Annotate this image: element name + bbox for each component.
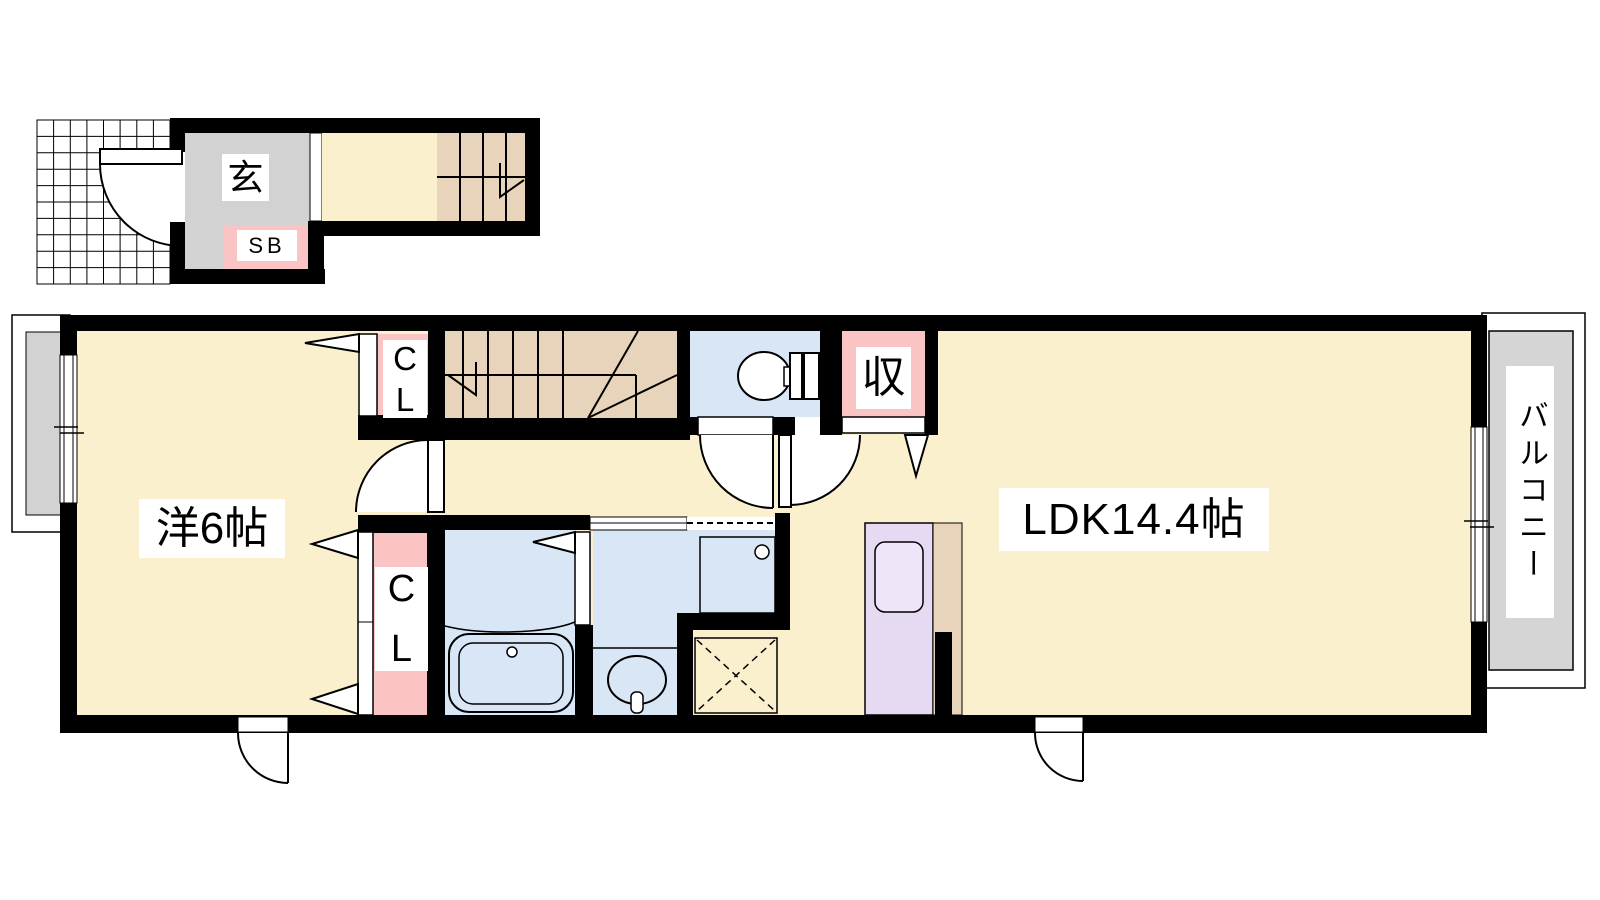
toilet-fixture <box>738 352 819 400</box>
storage-door <box>842 417 925 433</box>
entrance-step-opening <box>310 133 322 221</box>
entrance-label: 玄 <box>222 154 269 201</box>
left-window-ledge <box>26 332 64 515</box>
bathroom-door-panel <box>575 532 590 625</box>
closet-lower-label: C L <box>375 567 428 671</box>
entrance-door-leaf <box>100 149 182 164</box>
bathroom-floor <box>445 530 575 715</box>
shoe-box-label: SB <box>237 230 297 261</box>
storage-label: 収 <box>856 347 911 409</box>
kitchen-sink <box>875 542 923 612</box>
bottom-right-door <box>1035 717 1083 781</box>
closet-lower-label-line1: C <box>388 570 415 608</box>
closet-upper-label-line2: L <box>396 383 414 416</box>
floorplan-drawing <box>0 0 1600 900</box>
closet-upper-label: C L <box>383 340 427 418</box>
closet-lower-label-line2: L <box>391 630 412 668</box>
ldk-door-threshold <box>795 417 820 435</box>
ldk-label: LDK14.4帖 <box>999 488 1269 551</box>
closet-upper-label-line1: C <box>393 342 417 375</box>
washroom-sliding-door <box>590 517 775 530</box>
western-room-label: 洋6帖 <box>139 499 285 558</box>
floorplan-page: 玄 SB C L C L 収 洋6帖 LDK14.4帖 バルコニー <box>0 0 1600 900</box>
closet-upper-door <box>359 334 377 416</box>
first-floor-hall <box>322 133 437 221</box>
balcony-label: バルコニー <box>1506 366 1554 618</box>
bottom-left-door <box>238 717 288 783</box>
closet-lower-door <box>358 532 373 715</box>
